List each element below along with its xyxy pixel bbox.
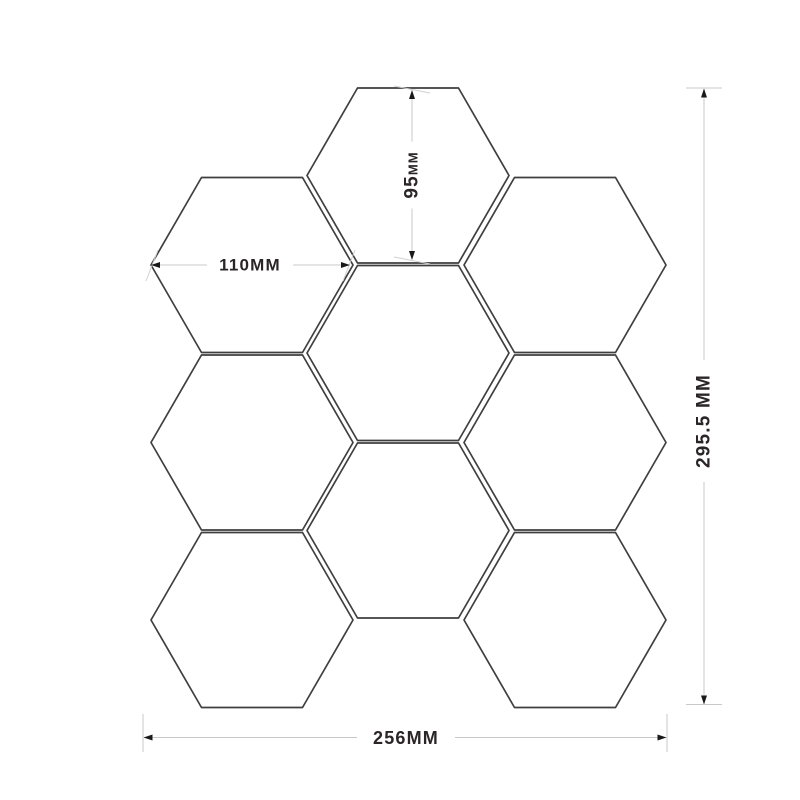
sheet-width-dimension-label: 256MM: [357, 727, 455, 749]
hexagon-height-value: 95: [402, 175, 423, 199]
sheet-height-arrowhead-up-icon: [701, 89, 707, 98]
sheet-width-arrowhead-left-icon: [144, 735, 153, 741]
hexagon-tile-dimension-diagram: 95MM 110MM 295.5 MM 256MM: [0, 0, 800, 800]
mosaic-diagram-canvas: [0, 0, 800, 800]
sheet-height-dimension-label: 295.5 MM: [693, 360, 716, 482]
hexagon-height-unit: MM: [406, 151, 421, 175]
hexagon-width-dimension-label: 110MM: [207, 255, 293, 276]
hexagon-height-dimension-label: 95MM: [401, 141, 424, 208]
sheet-width-arrowhead-right-icon: [658, 735, 667, 741]
sheet-height-arrowhead-down-icon: [701, 696, 707, 705]
hexagon-tile-bottom-right: [464, 533, 666, 708]
